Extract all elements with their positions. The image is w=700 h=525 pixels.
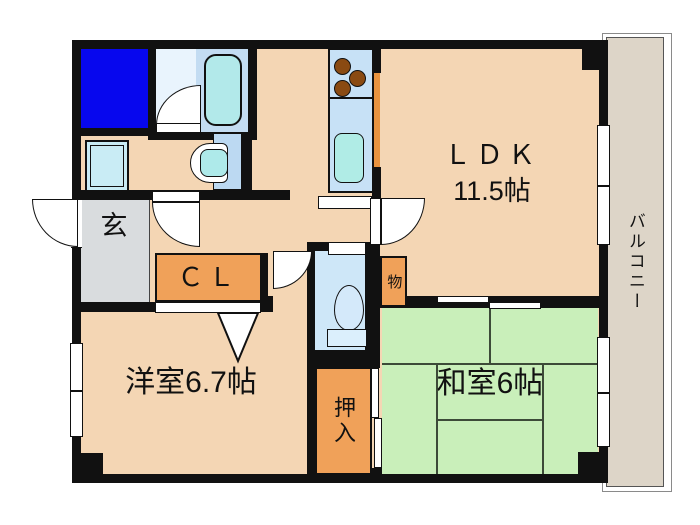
pillar [582,48,608,70]
washroom-door [152,191,200,202]
wall [307,350,380,367]
ldk-area-label: 11.5帖 [402,177,582,205]
kitchen-counter-edge [373,73,380,167]
window-frame-tick [598,185,609,187]
entrance-label: 玄 [78,212,150,240]
kitchen-counter-divider [328,97,374,99]
washbasin-bowl [200,149,228,177]
tatami-seam [436,419,542,421]
tatami-seam [489,308,491,365]
room-storage: 物 [380,256,407,307]
floorplan-canvas: バルコニー [0,0,700,525]
bathroom-door [156,123,201,133]
wall [372,468,382,483]
window-frame-tick [598,392,609,394]
room-balcony: バルコニー [606,37,664,487]
oshiire-label: 押入 [332,396,355,446]
washing-machine-pan [85,140,129,192]
pipe-space-block [80,48,148,128]
room-closet: ＣＬ [155,253,262,302]
ldk-door [370,198,381,245]
stove-burner-icon [334,80,351,97]
stove-burner-icon [349,70,366,87]
ldk-label: ＬＤＫ [402,141,582,169]
balcony-label: バルコニー [626,212,644,312]
wall [72,474,608,483]
room-oshiire: 押入 [315,367,372,475]
entrance-door-swing [32,199,78,247]
window-ldk-balcony [597,125,610,245]
oshiire-sliding-door [371,368,379,418]
japanese-room-label: 和室6帖 [382,368,598,400]
kitchen-door [318,196,372,209]
wall [248,40,257,140]
stove-burner-icon [334,58,351,75]
wall [72,128,156,136]
pillar [80,453,103,475]
oshiire-sliding-door [374,418,382,468]
kitchen-sink [334,133,364,183]
pillar [578,452,600,475]
western-room-label: 洋室6.7帖 [80,367,302,399]
toilet-door [328,242,366,255]
storage-label: 物 [386,274,402,289]
wall [72,302,155,312]
closet-label: ＣＬ [177,264,239,291]
western-room-door-swing [210,308,266,366]
japanese-room-sliding-door [489,302,541,309]
window-japanese-balcony [597,337,610,447]
washing-machine-pan-inner [90,145,124,187]
toilet-bowl-icon [334,285,364,331]
japanese-room-sliding-door [437,296,489,303]
wall [148,40,156,136]
toilet-tank-icon [327,329,367,347]
bathtub [204,54,242,126]
